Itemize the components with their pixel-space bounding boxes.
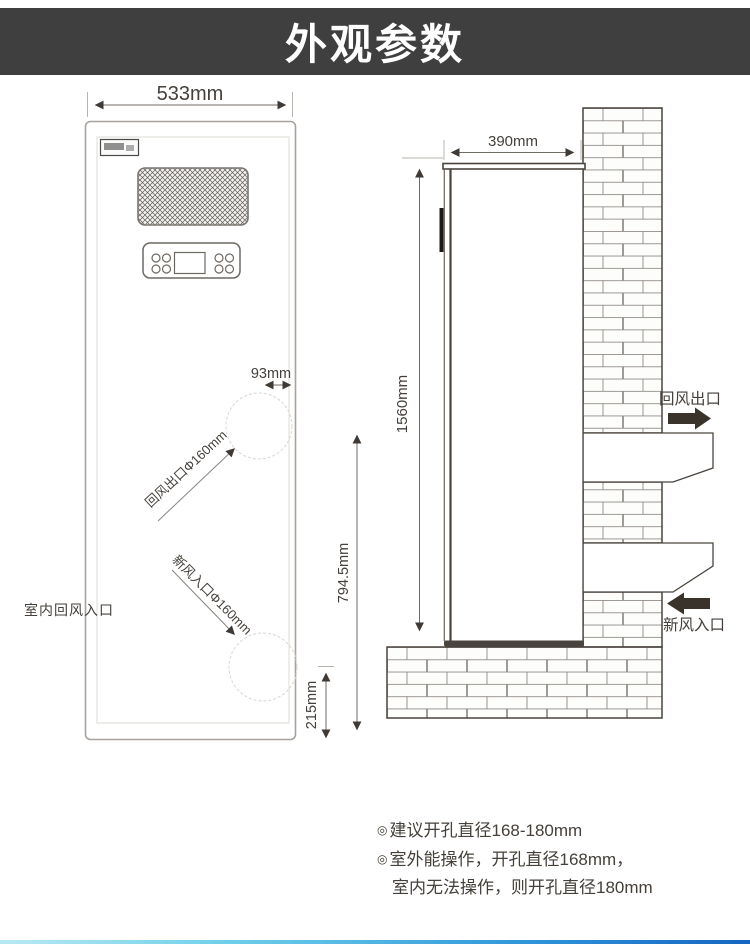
brand-logo <box>101 140 139 156</box>
side-fresh-inlet-label: 新风入口 <box>663 616 725 634</box>
unit-side-bracket <box>440 208 444 252</box>
base-height-dimension-label: 215mm <box>304 681 320 729</box>
bottom-accent-bar <box>0 940 750 944</box>
title-bar: 外观参数 <box>0 8 750 75</box>
unit-side-base-cap <box>444 641 584 647</box>
indoor-return-inlet-label: 室内回风入口 <box>24 602 114 618</box>
unit-side-body <box>446 168 583 641</box>
fresh-inlet-duct <box>583 543 713 592</box>
return-outlet-flow-arrow <box>668 408 711 430</box>
wall-middle <box>583 482 662 543</box>
wall-upper <box>583 108 662 433</box>
note-bullet-icon: ◎ <box>377 852 387 866</box>
air-grille <box>138 168 248 225</box>
gap-dimension-label: 93mm <box>251 366 291 382</box>
front-view: 533mm <box>24 83 357 740</box>
floor-platform <box>387 647 662 718</box>
depth-dimension-label: 390mm <box>488 133 538 150</box>
side-return-outlet-label: 回风出口 <box>659 390 721 408</box>
note-text-1: 建议开孔直径168-180mm <box>389 821 582 840</box>
note-line-2: ◎室外能操作，开孔直径168mm， <box>377 845 707 874</box>
control-panel <box>143 243 240 278</box>
dimension-diagram: 533mm <box>0 0 750 945</box>
return-outlet-duct <box>583 433 713 482</box>
note-text-3: 室内无法操作，则开孔直径180mm <box>392 878 653 897</box>
note-text-2: 室外能操作，开孔直径168mm， <box>389 850 633 869</box>
lower-height-dimension-label: 794.5mm <box>336 543 352 603</box>
installation-notes: ◎建议开孔直径168-180mm ◎室外能操作，开孔直径168mm， 室内无法操… <box>377 816 707 902</box>
height-dimension-label: 1560mm <box>394 375 411 433</box>
page-title: 外观参数 <box>285 11 465 72</box>
wall-lower <box>583 592 662 647</box>
side-view: 390mm 1560mm 回风出口 新风入口 <box>387 108 725 718</box>
width-dimension-label: 533mm <box>157 83 224 105</box>
spec-sheet-page: 533mm <box>0 0 750 945</box>
note-line-1: ◎建议开孔直径168-180mm <box>377 816 707 845</box>
note-line-3: 室内无法操作，则开孔直径180mm <box>377 874 707 902</box>
unit-side-top-cap <box>443 164 585 170</box>
note-bullet-icon: ◎ <box>377 823 387 837</box>
fresh-inlet-flow-arrow <box>667 593 710 615</box>
